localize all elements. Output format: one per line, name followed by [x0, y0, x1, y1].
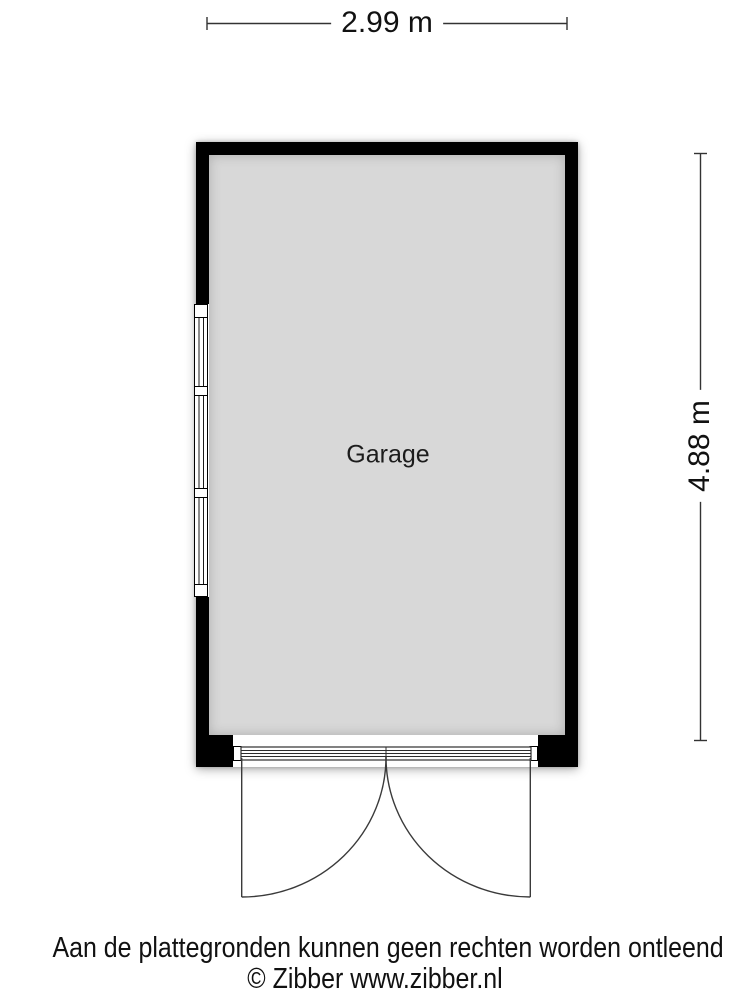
wall-bottom-left	[196, 735, 233, 767]
wall-right	[565, 142, 578, 767]
footer: Aan de plattegronden kunnen geen rechten…	[0, 933, 750, 995]
floor-plan-drawing	[0, 0, 750, 1000]
door-swing-right	[386, 757, 530, 897]
dimension-height-label: 4.88 m	[683, 390, 717, 502]
disclaimer-text: Aan de plattegronden kunnen geen rechten…	[53, 933, 698, 964]
window-symbol	[195, 305, 208, 597]
copyright-text: © Zibber www.zibber.nl	[53, 964, 698, 995]
wall-left-upper	[196, 142, 209, 304]
wall-top	[196, 142, 578, 155]
wall-bottom-right	[538, 735, 578, 767]
garage-door-symbol	[234, 747, 538, 898]
door-swing-left	[242, 757, 386, 897]
room-label: Garage	[346, 441, 429, 470]
dimension-width-label: 2.99 m	[331, 6, 443, 40]
door-jamb-left	[234, 747, 242, 761]
floor-plan-page: 2.99 m 4.88 m Garage Aan de plattegronde…	[0, 0, 750, 1000]
